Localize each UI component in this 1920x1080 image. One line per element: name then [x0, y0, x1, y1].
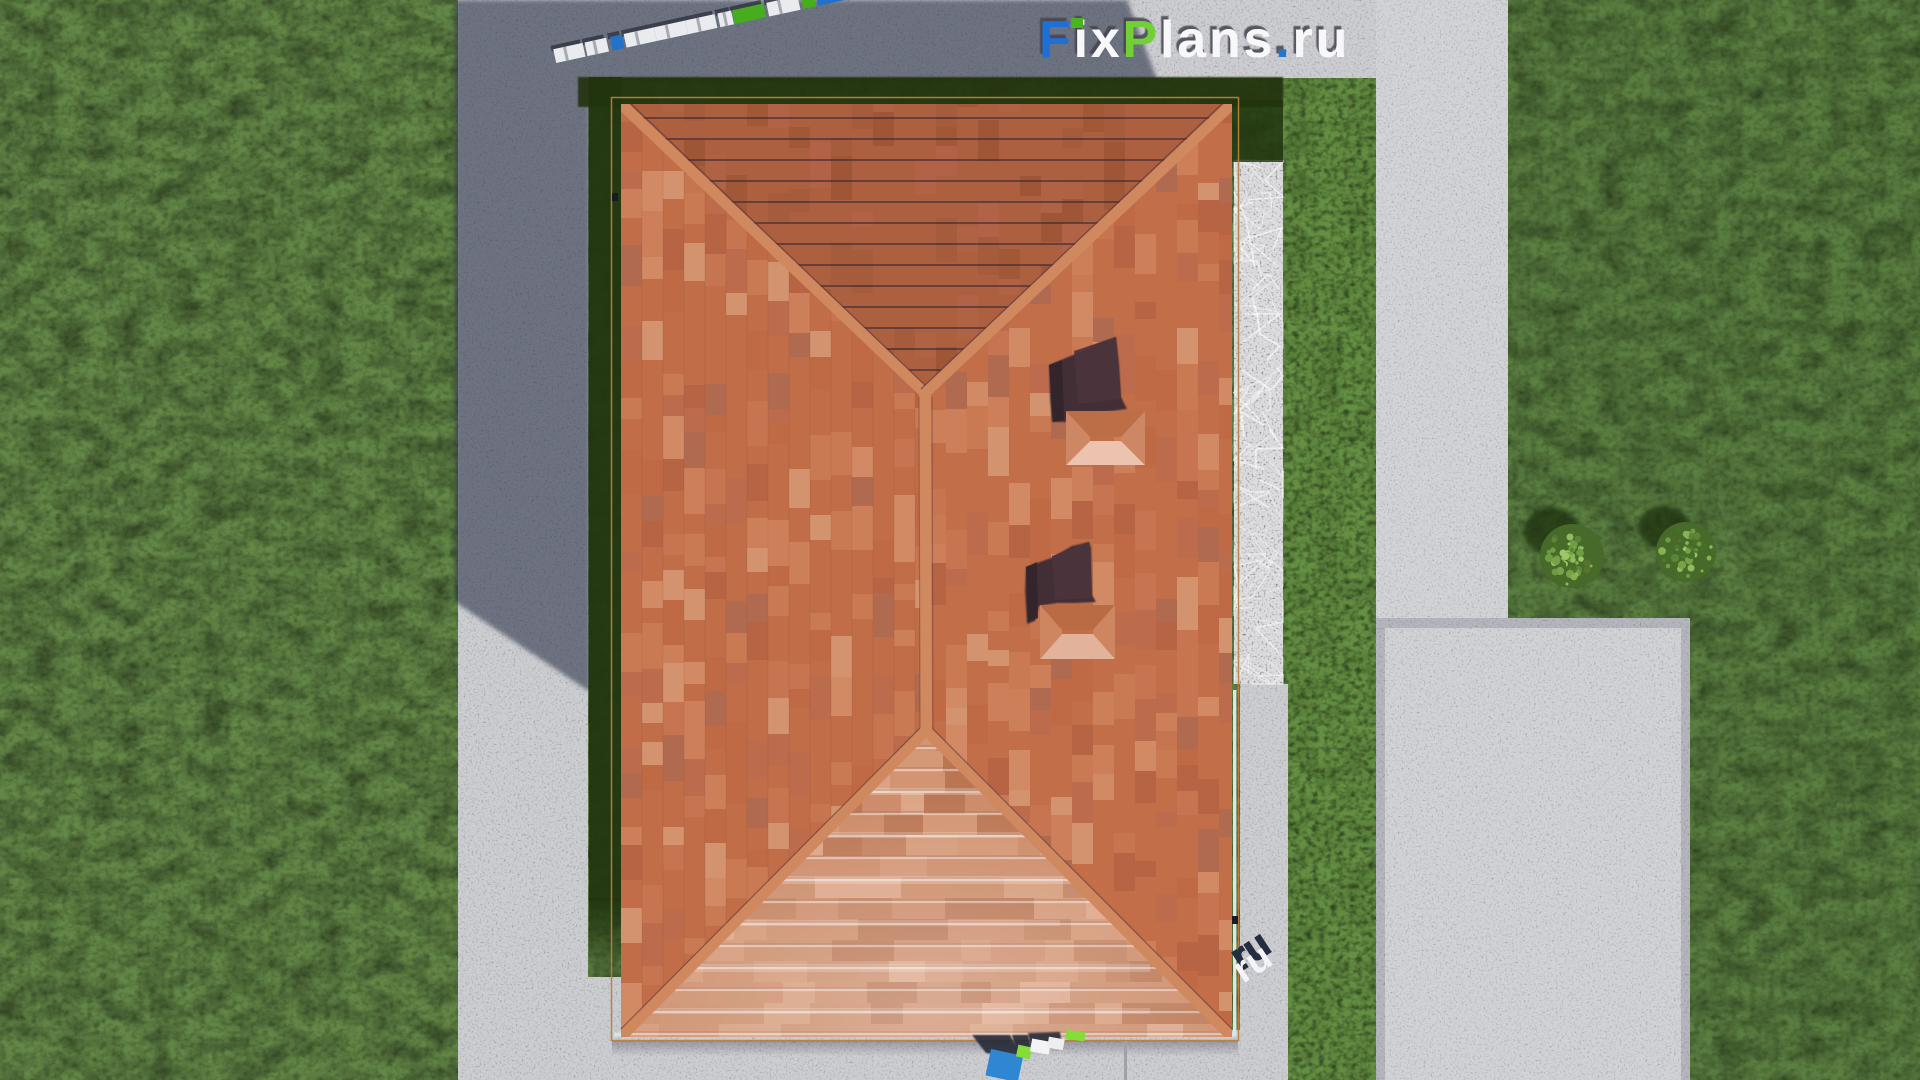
svg-text:FixPlans.ru: FixPlans.ru	[1039, 11, 1350, 69]
